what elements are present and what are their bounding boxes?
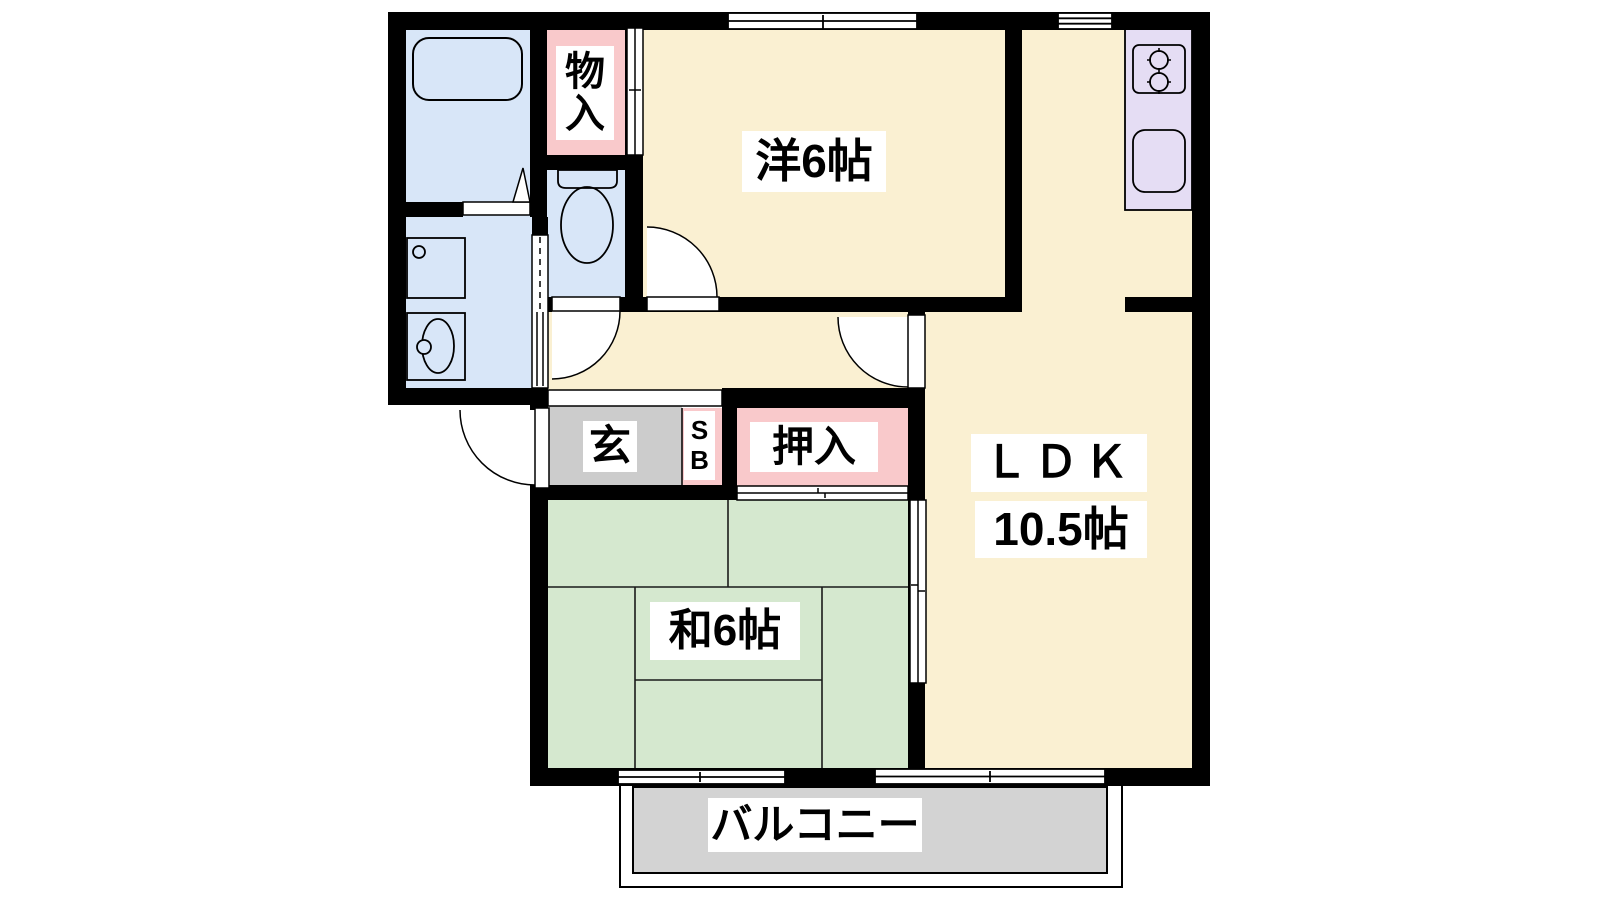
closet-label: 押入 [750,422,878,472]
japanese-room-label: 和6帖 [650,602,800,660]
window-japanese-room-bottom [618,770,785,784]
western-room-label: 洋6帖 [742,131,886,192]
kitchen-ldk-opening [1022,297,1125,312]
closet-sliding-door [737,486,908,500]
storage-label-char1: 物 [565,51,605,93]
balcony-label: バルコニー [708,798,922,852]
storage-label-char2: 入 [565,93,605,135]
japanese-room-sliding-door [910,500,926,683]
storage-label: 物 入 [556,46,614,140]
window-western-room-top [728,13,917,29]
kitchen-counter [1125,28,1192,210]
entrance-door [460,408,549,488]
shoe-box-label-char2: B [690,446,709,476]
ldk-name-label: ＬＤＫ [971,434,1147,492]
toilet-room-floor [547,170,627,297]
window-kitchen-top [1058,13,1112,29]
wall-right [1192,12,1210,785]
storage-door [627,28,643,155]
entrance-label: 玄 [583,421,637,472]
ldk-size-label: 10.5帖 [975,501,1147,558]
washroom-accordion-door [532,235,548,388]
washbasin-faucet [417,340,431,354]
entrance-step [548,390,722,406]
window-ldk-bottom [875,769,1105,784]
shoe-box-label: S B [684,411,715,480]
bathroom-floor [406,30,530,217]
floor-plan-canvas: 物 入 洋6帖 玄 S B 押入 和6帖 ＬＤＫ 10.5帖 バルコニー [0,0,1600,900]
shoe-box-label-char1: S [691,416,708,446]
